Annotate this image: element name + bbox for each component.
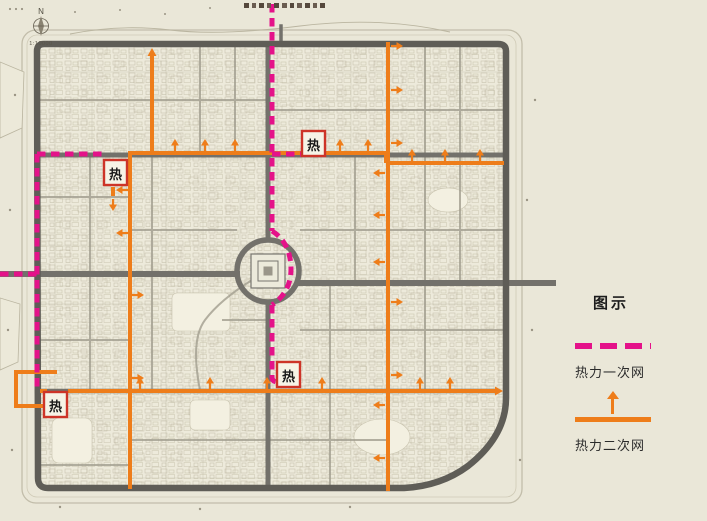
heat-plant-marker-1: 热 <box>104 160 127 185</box>
scale-label: 1:10000 <box>29 41 52 47</box>
map-legend: 图示 热力一次网 热力二次网 <box>575 292 700 454</box>
heat-plant-label: 热 <box>282 369 295 384</box>
north-label: N <box>38 7 44 16</box>
primary-network-line-sample <box>575 343 651 349</box>
heat-plant-label: 热 <box>307 138 320 153</box>
heat-plant-marker-3: 热 <box>277 362 300 387</box>
heat-plant-label: 热 <box>49 399 62 414</box>
heat-plant-label: 热 <box>109 167 122 182</box>
legend-item-primary-label: 热力一次网 <box>575 362 700 381</box>
suburb-patch-west-south <box>0 298 20 370</box>
city-map-canvas: 热 热 热 热 N 1:10000 <box>0 0 556 521</box>
compass-rose: N <box>33 7 49 36</box>
north-outskirt-contour <box>70 22 450 34</box>
heating-plan-map-page: 热 热 热 热 N 1:10000 图示 热力一次网 <box>0 0 707 521</box>
heat-plant-marker-4: 热 <box>44 392 67 417</box>
legend-title: 图示 <box>593 292 700 313</box>
secondary-network-line-sample <box>575 417 651 422</box>
suburb-patch-west-north <box>0 62 24 138</box>
secondary-network-arrow-sample <box>575 391 651 417</box>
tiny-caption-marks <box>244 3 325 8</box>
heat-plant-marker-2: 热 <box>302 131 325 156</box>
legend-item-secondary-label: 热力二次网 <box>575 435 700 454</box>
